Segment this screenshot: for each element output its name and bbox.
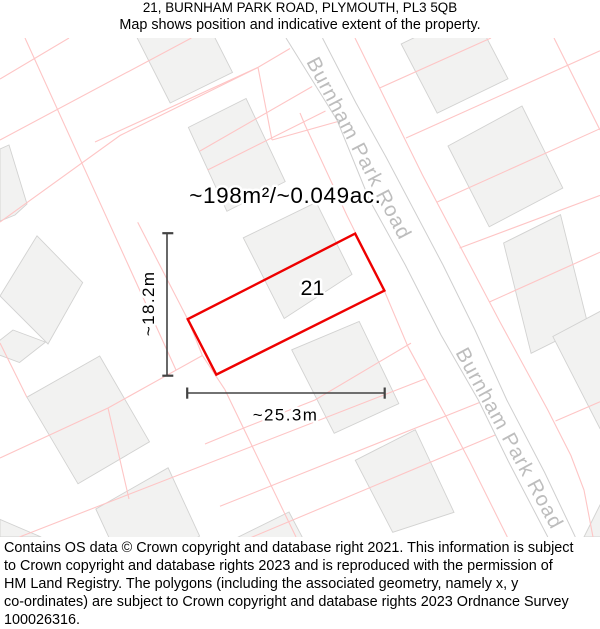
- svg-text:~18.2m: ~18.2m: [139, 271, 158, 337]
- svg-text:~25.3m: ~25.3m: [253, 406, 319, 425]
- svg-text:~198m²/~0.049ac.: ~198m²/~0.049ac.: [189, 183, 381, 208]
- svg-text:21: 21: [301, 276, 325, 300]
